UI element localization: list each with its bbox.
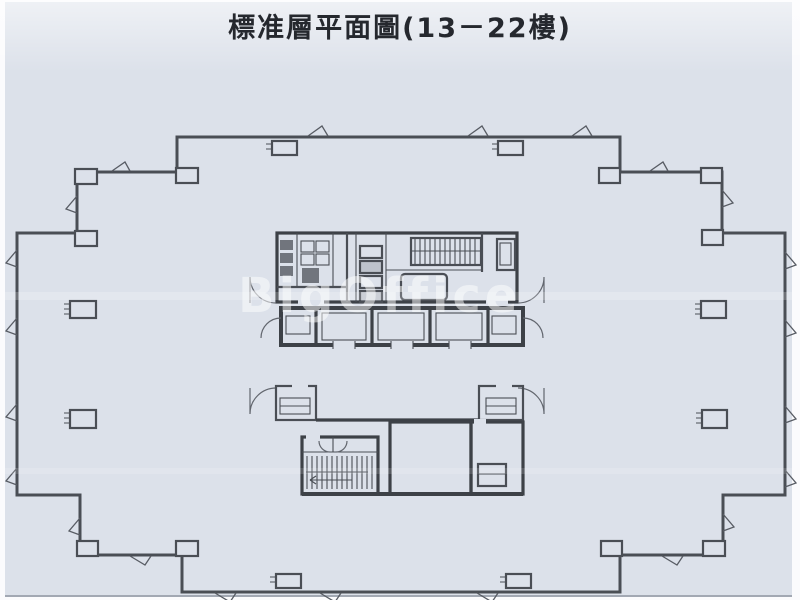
watermark-text: BigOffice <box>238 268 521 324</box>
fixture <box>360 246 382 258</box>
stair-direction-arrow <box>310 476 352 484</box>
column <box>498 141 523 155</box>
column <box>70 301 96 318</box>
column-hatch-marks <box>64 144 703 582</box>
column <box>276 574 301 588</box>
structural-columns <box>64 141 727 588</box>
north-staircase <box>411 238 481 265</box>
door-gap <box>306 433 320 441</box>
column <box>176 541 198 556</box>
column <box>176 168 198 183</box>
door-arc <box>523 318 543 338</box>
floor-plan-page: 標准層平面圖(13－22樓) <box>0 0 800 600</box>
column <box>70 410 96 428</box>
door-gap <box>474 419 486 426</box>
elevator-door-gap <box>449 341 471 349</box>
column <box>75 231 97 246</box>
column <box>506 574 531 588</box>
wc-stall <box>280 240 293 250</box>
service-lift <box>482 233 515 272</box>
south-east-room <box>471 419 523 494</box>
column <box>702 230 723 245</box>
column <box>272 141 297 155</box>
wc-stall <box>280 253 293 263</box>
building-outline <box>17 137 785 592</box>
column <box>601 541 622 556</box>
column <box>702 410 727 428</box>
column <box>75 169 97 184</box>
column <box>701 168 722 183</box>
room-fixture <box>478 464 506 486</box>
basin <box>316 241 329 252</box>
south-staircase <box>302 433 378 494</box>
core-room <box>390 422 471 494</box>
door-arc-sw <box>250 388 276 414</box>
floor-plan-drawing: BigOffice <box>0 0 800 600</box>
elevator-door-gap <box>391 341 413 349</box>
column <box>701 301 726 318</box>
door-arc-ne <box>518 277 544 303</box>
window-tick-marks <box>6 126 796 600</box>
basin <box>301 241 314 252</box>
core-south-band <box>302 419 523 494</box>
basin <box>316 254 329 265</box>
door-gap <box>496 384 512 389</box>
door-gap <box>292 384 308 389</box>
elevator-door-gap <box>333 341 355 349</box>
basin <box>301 254 314 265</box>
column <box>599 168 620 183</box>
column <box>703 541 725 556</box>
south-service-rooms <box>276 384 523 420</box>
column <box>77 541 98 556</box>
